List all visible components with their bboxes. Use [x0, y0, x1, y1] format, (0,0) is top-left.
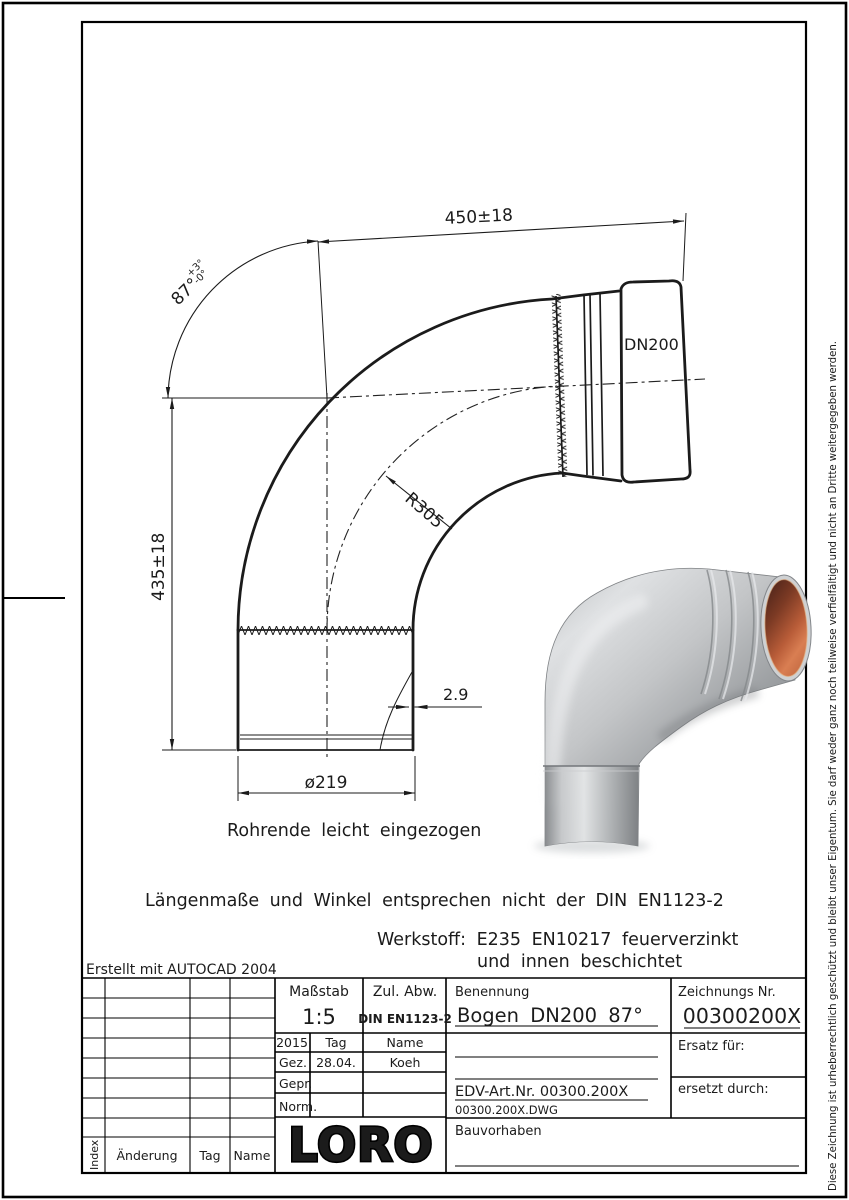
- dim-450-label: 450±18: [444, 205, 513, 229]
- photo-lower-pipe: [545, 766, 638, 846]
- tag-header: Tag: [324, 1035, 346, 1050]
- note-created-with: Erstellt mit AUTOCAD 2004: [86, 962, 277, 978]
- ersatz-fuer-label: Ersatz für:: [678, 1039, 745, 1054]
- horizontal-centerline: [327, 379, 705, 398]
- masstab-value: 1:5: [302, 1005, 336, 1029]
- benennung-value: Bogen DN200 87°: [457, 1004, 643, 1027]
- note-werkstoff-1: Werkstoff: E235 EN10217 feuerverzinkt: [377, 930, 739, 950]
- pipe-inner-wall: [380, 672, 412, 750]
- tag2-label: Tag: [198, 1148, 220, 1163]
- bauvorhaben-label: Bauvorhaben: [455, 1124, 542, 1139]
- notes: Längenmaße und Winkel entsprechen nicht …: [86, 891, 739, 978]
- name-header: Name: [387, 1035, 424, 1050]
- zul-abw-label: Zul. Abw.: [373, 984, 437, 1000]
- note-werkstoff-2: und innen beschichtet: [477, 952, 682, 972]
- pipe-straight-edges: [238, 630, 413, 750]
- dimension-450: 450±18: [318, 205, 684, 243]
- dimension-angle-87: 87° +3° -0°: [164, 239, 318, 398]
- copyright-note: Diese Zeichnung ist urheberrechtlich ges…: [827, 341, 839, 1191]
- zeichnungs-nr-label: Zeichnungs Nr.: [678, 985, 776, 1000]
- dimension-wall-29: 2.9: [388, 685, 482, 709]
- dn200-label: DN200: [624, 335, 679, 354]
- dimension-r305: R305: [386, 476, 452, 533]
- dim-435-label: 435±18: [149, 533, 169, 601]
- dimension-dia-219: ø219: [238, 773, 415, 795]
- norm-label: Norm.: [279, 1099, 317, 1114]
- pipe-end-note: Rohrende leicht eingezogen: [227, 821, 481, 841]
- revision-table-grid: [82, 978, 275, 1173]
- weld-seam-bottom: [238, 626, 414, 635]
- benennung-label: Benennung: [455, 985, 529, 1000]
- dim-r305-label: R305: [401, 489, 448, 533]
- product-photo: [534, 568, 814, 853]
- index-label: Index: [88, 1139, 101, 1170]
- note-din: Längenmaße und Winkel entsprechen nicht …: [145, 891, 724, 911]
- edv-art-nr: EDV-Art.Nr. 00300.200X: [455, 1084, 628, 1100]
- dwg-filename: 00300.200X.DWG: [455, 1103, 558, 1117]
- bend-centerline-arc: [327, 386, 557, 630]
- gez-name: Koeh: [390, 1055, 421, 1070]
- name2-label: Name: [234, 1148, 271, 1163]
- loro-logo: LORO: [288, 1118, 433, 1172]
- dimension-435: 435±18: [149, 398, 174, 750]
- year-cell: 2015: [276, 1035, 308, 1050]
- zul-abw-value: DIN EN1123-2: [358, 1012, 452, 1026]
- gez-date: 28.04.: [316, 1055, 356, 1070]
- gepr-label: Gepr.: [279, 1076, 312, 1091]
- aenderung-label: Änderung: [116, 1148, 177, 1163]
- drawing-sheet: 450±18 435±18 87° +3° -0° R305: [0, 0, 849, 1200]
- title-block: Maßstab 1:5 Zul. Abw. DIN EN1123-2 2015 …: [82, 978, 806, 1173]
- gez-label: Gez.: [279, 1055, 307, 1070]
- pipe-bead-lines: [240, 735, 412, 739]
- zeichnungs-nr-value: 00300200X: [683, 1004, 801, 1028]
- ersetzt-durch-label: ersetzt durch:: [678, 1082, 769, 1097]
- masstab-label: Maßstab: [289, 984, 349, 1000]
- weld-seam-socket: [552, 294, 568, 477]
- dim-dia-label: ø219: [305, 773, 348, 793]
- dim-wall-label: 2.9: [443, 685, 468, 704]
- cad-canvas: 450±18 435±18 87° +3° -0° R305: [0, 0, 849, 1200]
